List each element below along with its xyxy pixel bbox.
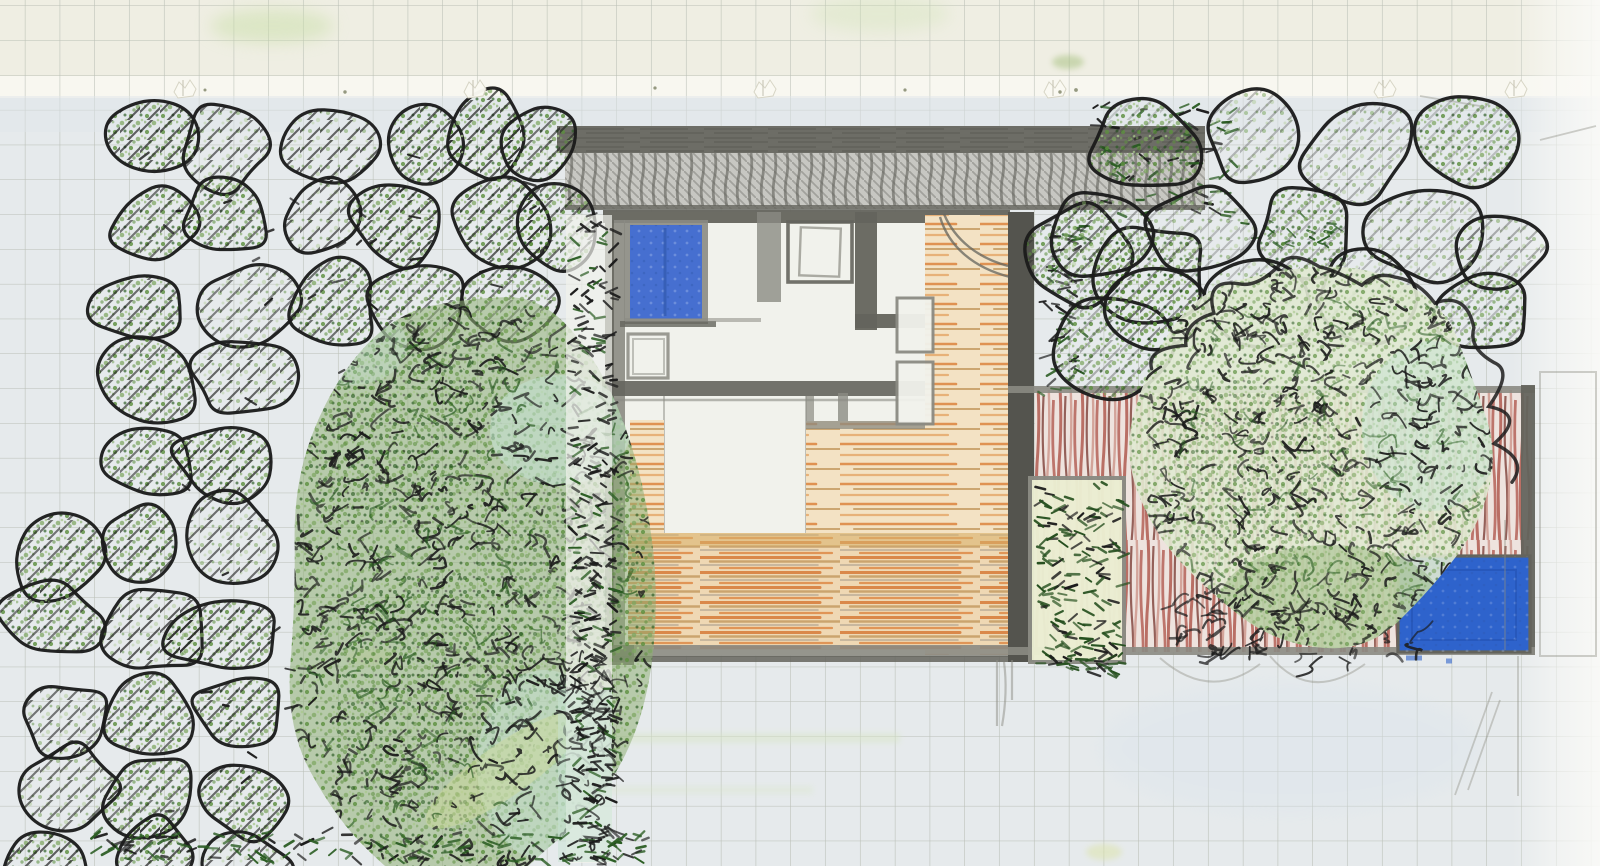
stair-window-b	[897, 362, 933, 424]
upper-post-a	[757, 212, 781, 302]
sketch-canvas	[0, 0, 1600, 866]
sketch-page	[0, 0, 1600, 866]
lower-deck-boards	[628, 533, 1008, 650]
lower-deck-top-band	[628, 533, 1008, 546]
stair-window-a	[897, 298, 933, 352]
upper-post-b	[855, 212, 877, 330]
base-sill	[600, 645, 1015, 657]
hedge-gate	[1030, 478, 1124, 662]
house-elevation	[600, 210, 1034, 726]
base-shadow-line	[600, 656, 1018, 662]
upper-deck-boards	[806, 421, 942, 533]
